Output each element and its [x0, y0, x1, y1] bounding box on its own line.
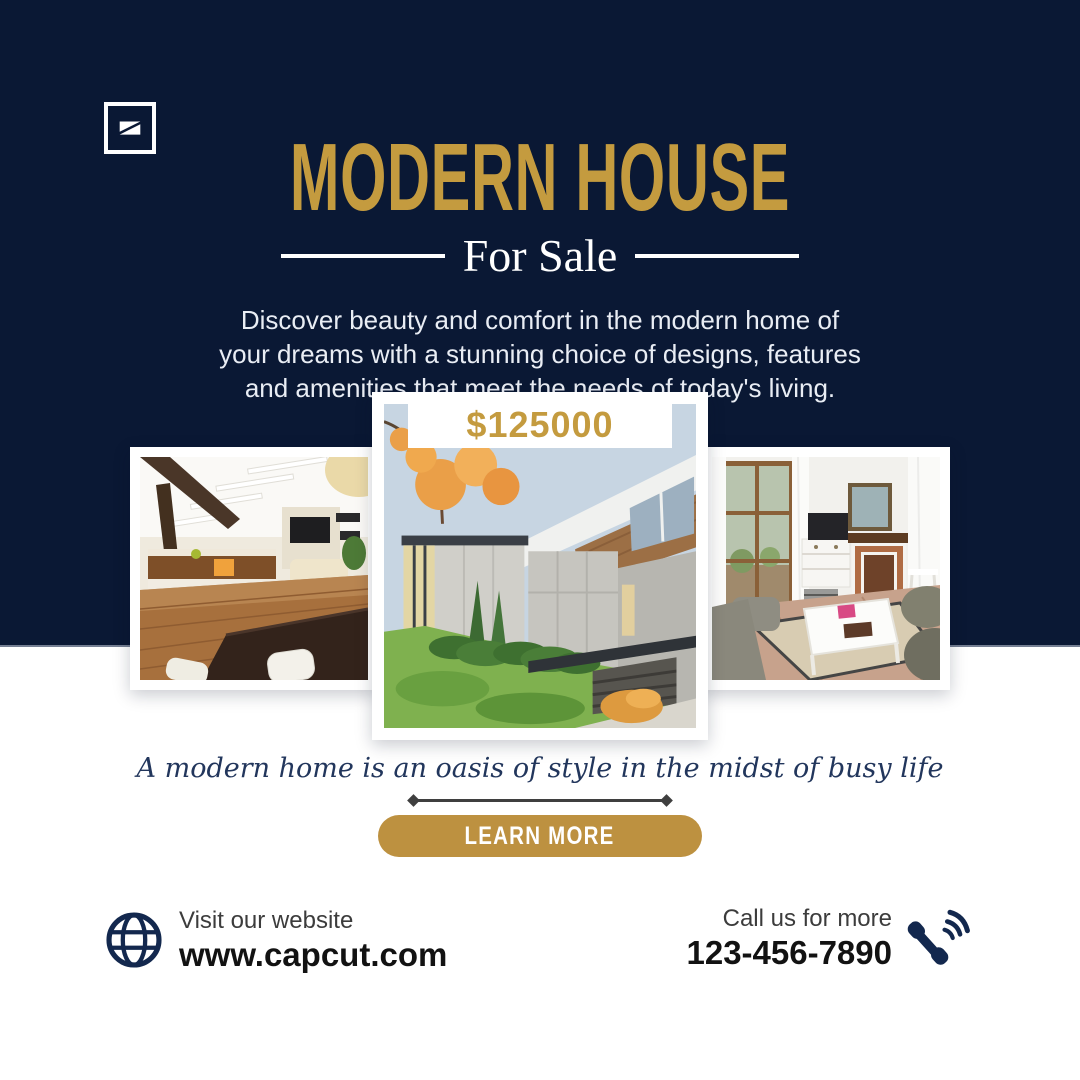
globe-icon — [103, 909, 165, 971]
website-block: Visit our website www.capcut.com — [103, 906, 447, 974]
capcut-logo-icon — [115, 113, 145, 143]
description-line: Discover beauty and comfort in the moder… — [0, 303, 1080, 337]
photo-interior-living-dining — [130, 447, 378, 690]
capcut-logo — [104, 102, 156, 154]
modern-house-exterior-image — [384, 404, 696, 728]
description-line: your dreams with a stunning choice of de… — [0, 337, 1080, 371]
phone-block: Call us for more 123-456-7890 — [686, 903, 972, 973]
living-room-fireplace-image — [712, 457, 940, 680]
interior-living-dining-image — [140, 457, 368, 680]
subtitle-row: For Sale — [0, 231, 1080, 282]
website-url: www.capcut.com — [179, 936, 447, 974]
photo-modern-house-exterior: $125000 — [372, 392, 708, 740]
learn-more-button[interactable]: LEARN MORE — [378, 815, 702, 857]
description: Discover beauty and comfort in the moder… — [0, 303, 1080, 405]
quote-divider — [415, 799, 665, 802]
quote-text: A modern home is an oasis of style in th… — [0, 753, 1080, 784]
phone-label: Call us for more — [686, 904, 892, 934]
phone-number: 123-456-7890 — [686, 934, 892, 972]
subtitle-rule-left — [281, 254, 445, 258]
phone-icon — [906, 903, 972, 973]
website-label: Visit our website — [179, 906, 447, 936]
poster-canvas: MODERN HOUSE For Sale Discover beauty an… — [0, 0, 1080, 1080]
page-title: MODERN HOUSE — [205, 130, 875, 226]
price-tag: $125000 — [408, 402, 672, 448]
price-text: $125000 — [466, 404, 613, 446]
subtitle: For Sale — [463, 231, 618, 282]
photo-living-room-fireplace — [702, 447, 950, 690]
learn-more-label: LEARN MORE — [465, 822, 615, 851]
subtitle-rule-right — [635, 254, 799, 258]
